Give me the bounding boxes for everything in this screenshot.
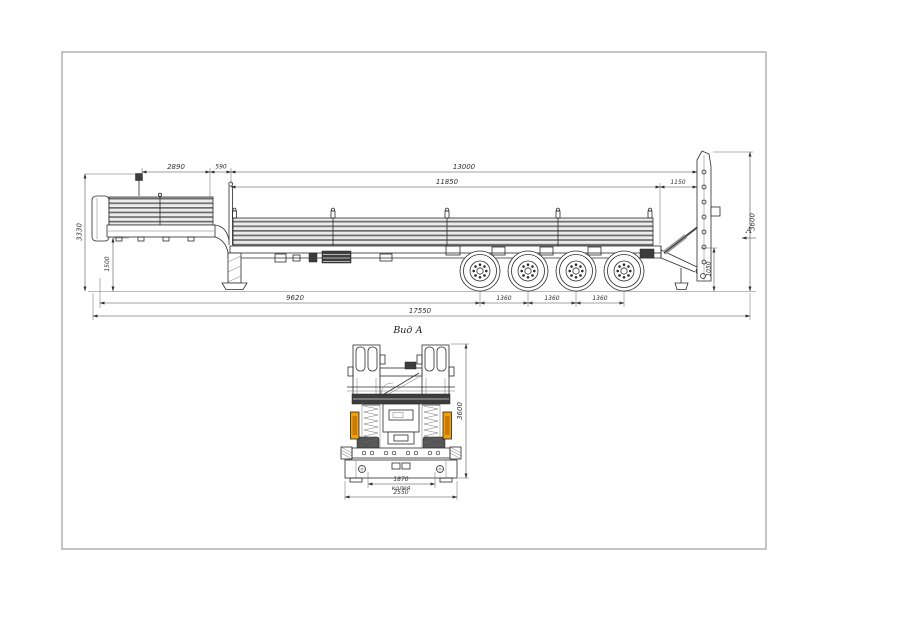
rear-view: Вид А: [341, 325, 461, 482]
dim-neck-gap: 590: [215, 164, 227, 171]
dim-overall-height: 3330: [76, 223, 84, 241]
view-arrow-label: A: [745, 226, 752, 236]
dim-deck-height: 1500: [104, 256, 111, 271]
dim-rear-overall-width: 2550: [393, 489, 408, 496]
side-marker-left-core: [353, 416, 358, 435]
dim-axle-spacing-3: 1360: [592, 295, 607, 302]
dim-rear-overall-height: 3600: [456, 402, 464, 420]
rear-view-title: Вид А: [392, 325, 422, 336]
front-headboard: [92, 196, 109, 241]
platform-boards: [233, 218, 653, 246]
technical-drawing: 2890 590 13000 11850 1150 3330 1500 3600…: [0, 0, 900, 636]
axle-assembly: [341, 447, 461, 459]
center-gearbox: [383, 404, 419, 444]
dim-axle-spacing-1: 1360: [496, 295, 511, 302]
dim-rear-frame-height: 1050: [706, 261, 713, 276]
dim-platform-inner: 11850: [436, 178, 459, 186]
wheels: [460, 251, 644, 291]
gooseneck-boards: [109, 197, 213, 225]
dim-overall-length: 17550: [409, 307, 432, 315]
landing-leg: [222, 253, 247, 290]
dim-track-width: 1870: [393, 476, 408, 483]
dim-gooseneck-length: 2890: [167, 163, 185, 171]
beavertail: [661, 226, 702, 290]
dim-platform-total: 13000: [453, 163, 476, 171]
gooseneck-curve: [215, 225, 229, 258]
dim-front-to-first-axle: 9620: [286, 294, 304, 302]
dim-rear-section: 1150: [670, 179, 685, 186]
front-marker-lamp: [136, 174, 143, 181]
drawing-page: 2890 590 13000 11850 1150 3330 1500 3600…: [0, 0, 900, 636]
side-marker-right-core: [445, 416, 450, 435]
dim-axle-spacing-2: 1360: [544, 295, 559, 302]
